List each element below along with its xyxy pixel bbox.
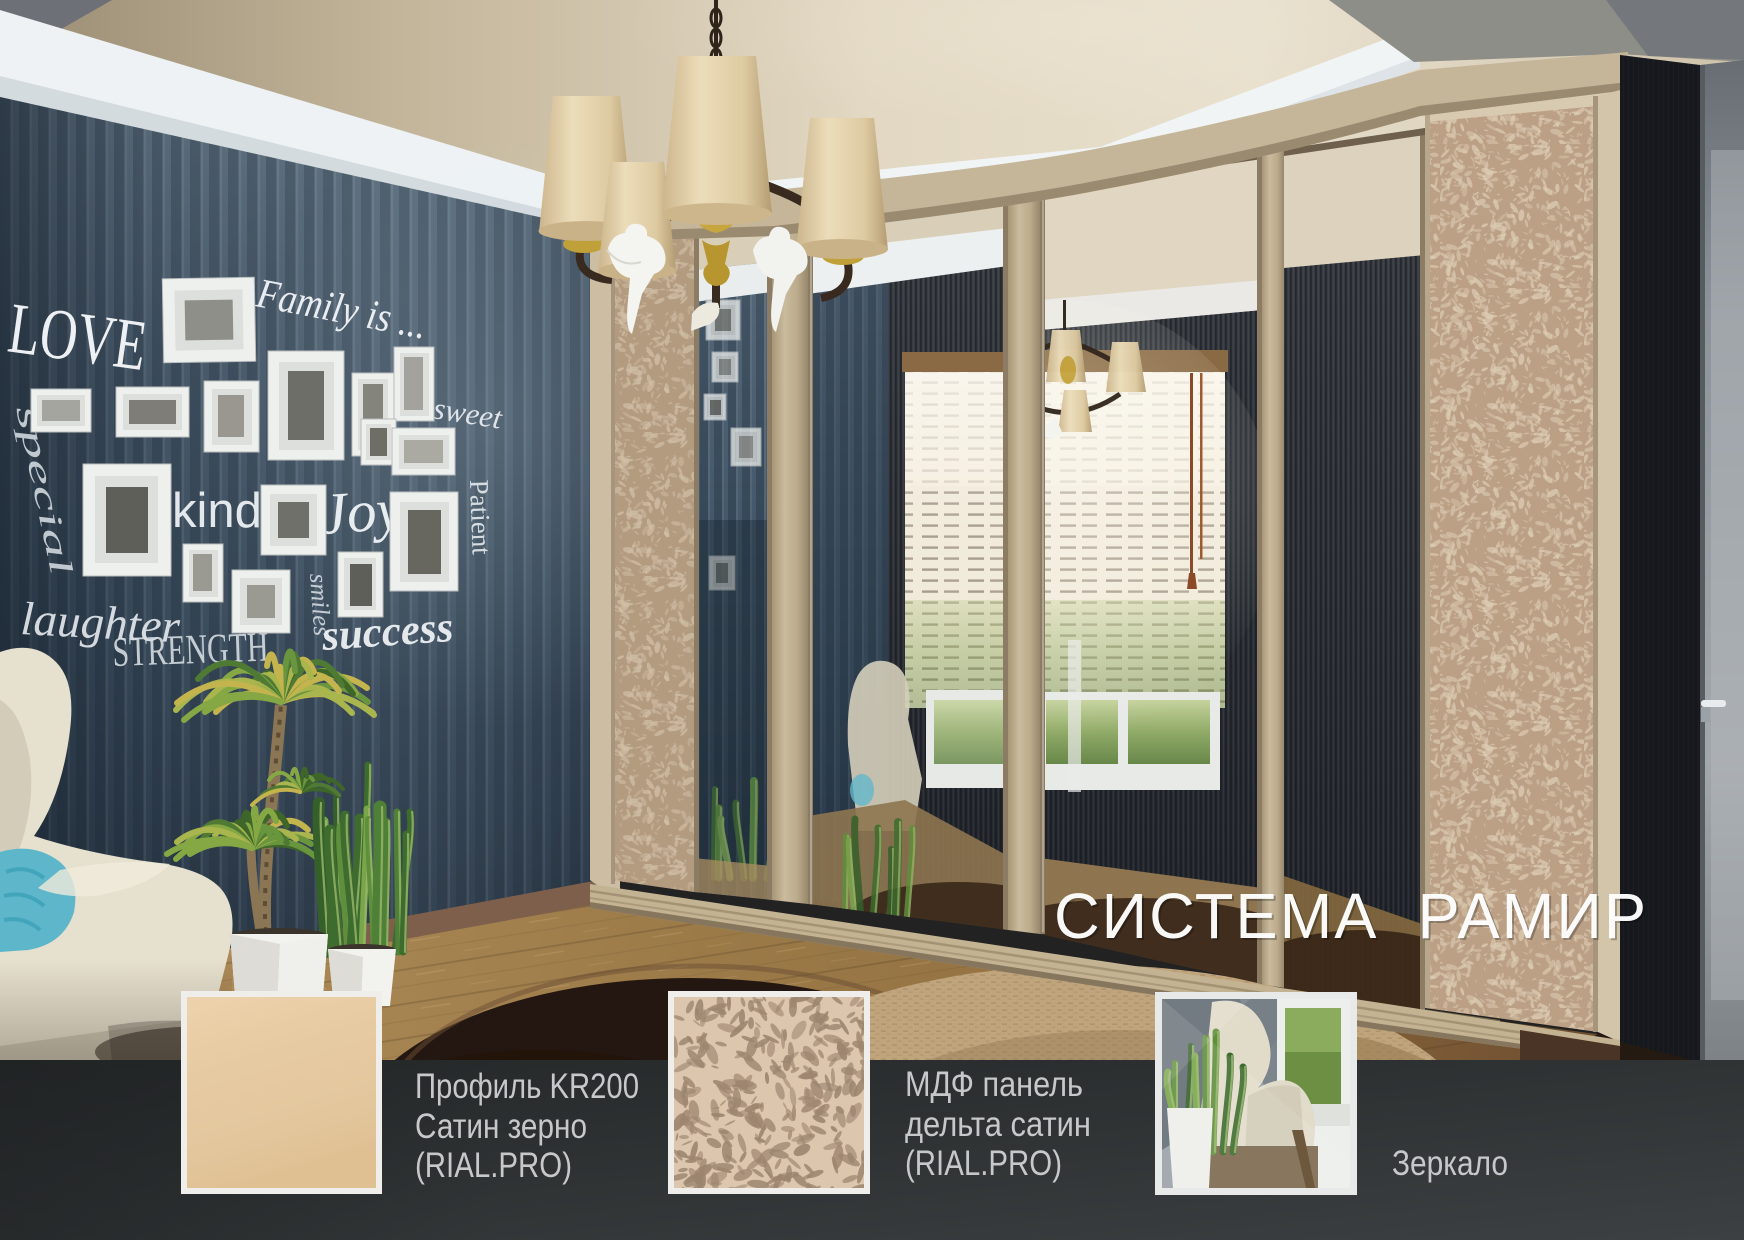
- svg-text:Patient: Patient: [464, 479, 497, 555]
- svg-text:СИСТЕМА РАМИР: СИСТЕМА РАМИР: [1054, 880, 1648, 952]
- svg-text:kind: kind: [172, 484, 262, 538]
- svg-text:(RIAL.PRO): (RIAL.PRO): [415, 1146, 572, 1185]
- svg-text:(RIAL.PRO): (RIAL.PRO): [905, 1144, 1062, 1183]
- svg-text:Сатин зерно: Сатин зерно: [415, 1107, 587, 1146]
- svg-text:Зеркало: Зеркало: [1392, 1144, 1508, 1183]
- svg-text:дельта сатин: дельта сатин: [905, 1105, 1091, 1144]
- svg-text:МДФ панель: МДФ панель: [905, 1065, 1083, 1104]
- svg-text:Профиль KR200: Профиль KR200: [415, 1067, 639, 1106]
